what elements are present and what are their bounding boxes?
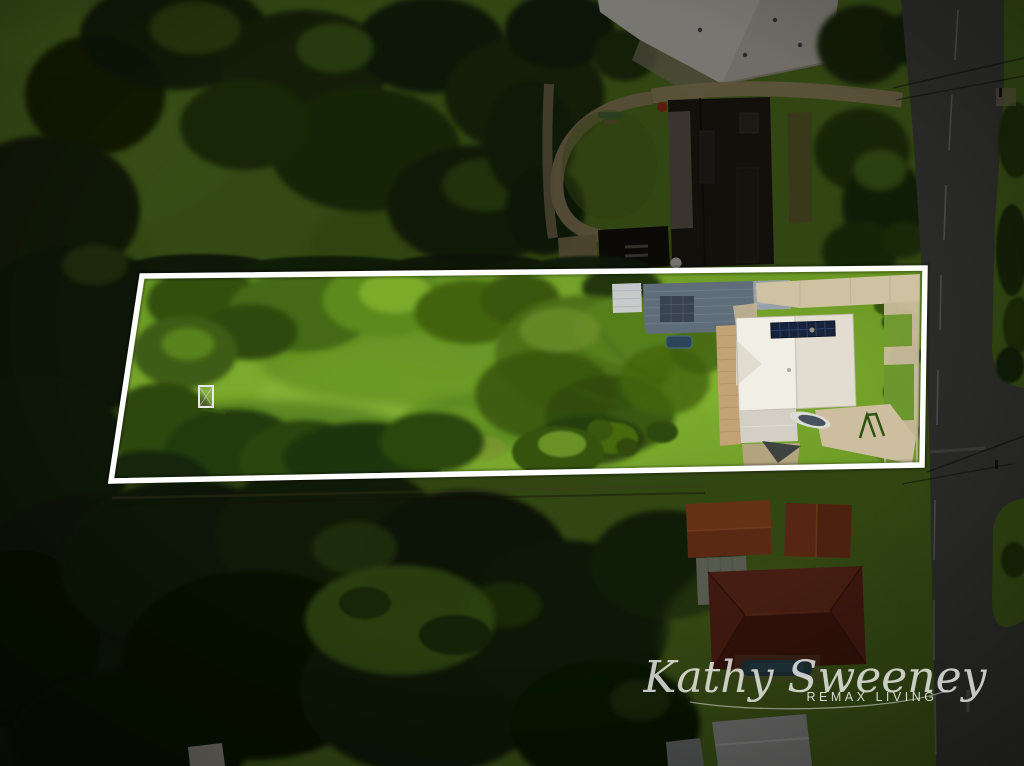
aerial-photo-canvas: Kathy Sweeney REMAX LIVING — [0, 0, 1024, 766]
watermark-brand: REMAX LIVING — [807, 690, 938, 704]
watermark: Kathy Sweeney REMAX LIVING — [642, 652, 987, 709]
aerial-photo: Kathy Sweeney REMAX LIVING — [0, 0, 1024, 766]
